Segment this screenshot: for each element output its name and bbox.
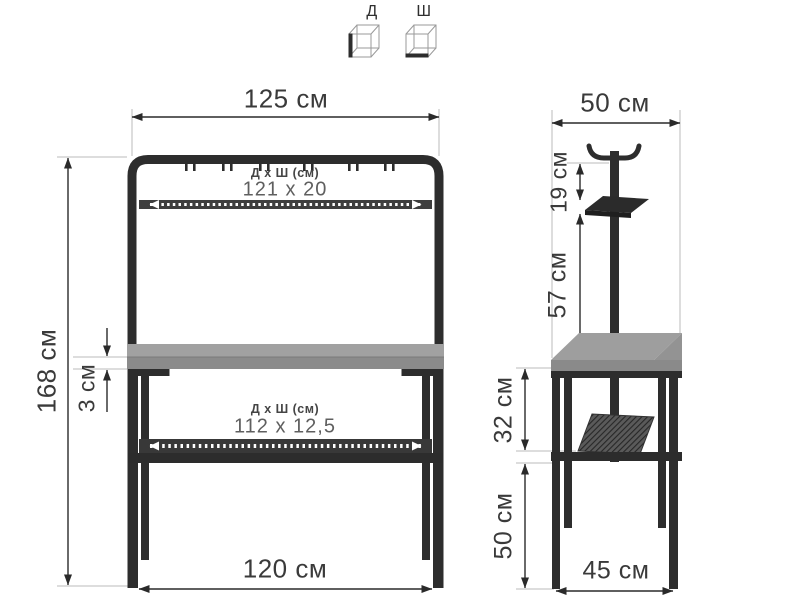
upper-shelf-side: [585, 196, 649, 218]
lower-shelf-dims-value: 112 х 12,5: [234, 416, 336, 439]
legend-width-label: Ш: [416, 3, 431, 21]
side-overall-depth-label: 50 см: [580, 88, 650, 119]
tabletop-side: [551, 333, 682, 371]
front-overall-width-label: 125 см: [244, 84, 328, 115]
side-hook-to-shelf-label: 19 см: [546, 151, 573, 213]
lower-shelf-dims-title: Д х Ш (см): [251, 402, 319, 416]
top-shelf-dims-value: 121 х 20: [243, 179, 328, 202]
side-base-depth-label: 45 см: [583, 557, 650, 586]
side-shelf-to-floor-label: 50 см: [490, 493, 519, 560]
cube-width-icon: [406, 25, 437, 57]
side-shelf-to-tabletop-label: 57 см: [544, 252, 573, 319]
legend-length-label: Д: [366, 3, 377, 21]
side-tabletop-to-shelf-label: 32 см: [490, 377, 519, 444]
side-view-drawing: [516, 110, 682, 591]
front-base-width-label: 120 см: [243, 554, 327, 585]
tabletop-front: [127, 344, 444, 369]
furniture-dimension-drawing: Д Ш 125 см 168 см Д х Ш (см) 121 х 20 3 …: [0, 0, 800, 608]
technical-drawing-canvas: [0, 0, 800, 608]
lower-mesh-shelf: [128, 439, 444, 463]
tabletop-thickness-label: 3 см: [74, 364, 101, 413]
cube-length-icon: [349, 25, 379, 58]
front-overall-height-label: 168 см: [32, 329, 63, 413]
